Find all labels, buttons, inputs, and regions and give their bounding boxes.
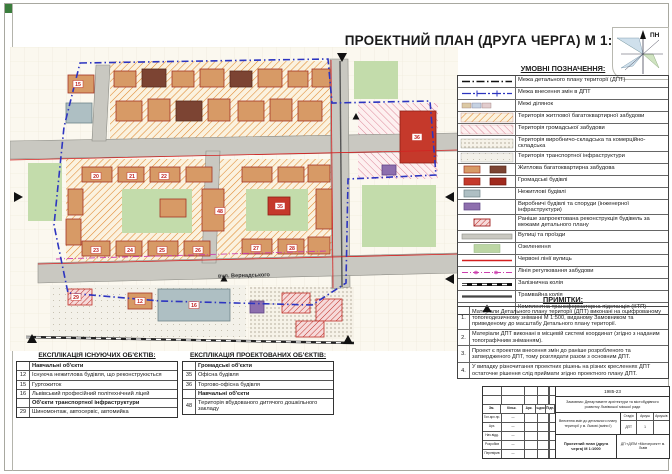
building[interactable] (160, 199, 186, 217)
building-number: 36 (412, 134, 422, 142)
building[interactable] (282, 293, 310, 313)
explication-existing: ЕКСПЛІКАЦІЯ ІСНУЮЧИХ ОБ'ЄКТІВ: Навчальні… (16, 352, 178, 418)
building[interactable] (172, 71, 194, 87)
legend-swatch (458, 76, 516, 87)
explication-row: Громадські об'єкти (183, 362, 333, 370)
object-label: Навчальні об'єкти (196, 390, 333, 398)
signature-row: Гол.арх.пр.— (483, 413, 555, 422)
legend-swatch (458, 100, 516, 111)
signature-cell: — (502, 414, 525, 422)
signature-row: Розробив— (483, 440, 555, 449)
signature-cell (550, 396, 555, 404)
building[interactable] (148, 99, 170, 121)
signature-cell (550, 441, 555, 449)
legend-label: Лінія регулювання забудови (516, 267, 668, 278)
object-number: 15 (17, 381, 30, 389)
signature-cell (538, 387, 549, 395)
building[interactable] (288, 71, 308, 87)
object-number (17, 399, 30, 407)
signature-cell: Перевірив (483, 450, 502, 458)
signature-cell (525, 432, 538, 440)
legend-label: Червоні лінії вулиць (516, 255, 668, 266)
signature-cell (538, 423, 549, 431)
legend-row: Межа внесення змін в ДПТ (458, 87, 668, 99)
building[interactable] (278, 167, 304, 182)
svg-text:12: 12 (137, 299, 143, 305)
project-code: 1985-23 (556, 387, 669, 397)
signature-cell (550, 450, 555, 458)
svg-text:15: 15 (75, 82, 81, 88)
bar-gray-swatch-icon (460, 231, 514, 242)
note-number: 2. (458, 330, 470, 346)
note-number: 3. (458, 346, 470, 362)
explication-row: Навчальні об'єкти (17, 362, 177, 370)
notes-title: ПРИМІТКИ: (457, 295, 669, 304)
building[interactable] (296, 321, 324, 337)
building[interactable] (382, 165, 396, 175)
building-number: 27 (251, 245, 261, 253)
building[interactable] (242, 167, 272, 182)
legend-swatch (458, 152, 516, 163)
signature-row: Арх.— (483, 422, 555, 431)
explication-row: 36Торгово-офісна будівля (183, 380, 333, 389)
signature-cell (538, 441, 549, 449)
explication-projected: ЕКСПЛІКАЦІЯ ПРОЕКТОВАНИХ ОБ'ЄКТІВ: Грома… (182, 352, 334, 415)
note-row: 2.Матеріали ДПТ виконані в місцевій сист… (458, 329, 668, 346)
sheet-name: Проектний план (друга черга) М 1:1000 (556, 435, 617, 458)
sheet-value: 1 (637, 421, 653, 434)
signature-cell (483, 396, 502, 404)
building[interactable] (270, 99, 292, 121)
svg-text:21: 21 (129, 174, 135, 180)
notes-table: 1.Матеріали Детального плану території (… (457, 306, 669, 379)
object-number: 12 (17, 371, 30, 379)
building-number: 24 (125, 247, 135, 255)
signature-cell (550, 414, 555, 422)
legend-swatch (458, 215, 516, 230)
signature-row (483, 387, 555, 395)
legend-swatch (458, 176, 516, 187)
explication-row: 15Гуртожиток (17, 380, 177, 389)
signature-cell: Розробив (483, 441, 502, 449)
object-label: Громадські об'єкти (196, 362, 333, 370)
legend-row: Територія громадської забудови (458, 123, 668, 135)
project-name: Внесення змін до детального плану терито… (556, 413, 621, 434)
building[interactable] (68, 189, 83, 215)
object-label: Об'єкти транспортної інфраструктури (30, 399, 177, 407)
explication-projected-table: Громадські об'єкти35Офісна будівля36Торг… (182, 361, 334, 415)
building-number: 22 (159, 173, 169, 181)
signature-cell (550, 387, 555, 395)
page-title: ПРОЕКТНИЙ ПЛАН (ДРУГА ЧЕРГА) М 1:1000 (344, 33, 644, 48)
explication-projected-title: ЕКСПЛІКАЦІЯ ПРОЕКТОВАНИХ ОБ'ЄКТІВ: (182, 352, 334, 359)
explication-row: Об'єкти транспортної інфраструктури (17, 398, 177, 407)
signature-cell (525, 441, 538, 449)
rects-tan-swatch-icon (460, 164, 514, 175)
legend-swatch (458, 88, 516, 99)
signature-cell (483, 387, 502, 395)
building[interactable] (316, 299, 342, 321)
signature-cell: — (502, 432, 525, 440)
building-number: 21 (127, 173, 137, 181)
svg-text:29: 29 (73, 295, 79, 301)
legend-swatch (458, 243, 516, 254)
object-label: Шиномонтаж, автосервіс, автомийка (30, 408, 177, 416)
object-number (17, 362, 30, 370)
corner-marker (5, 4, 12, 13)
legend-swatch (458, 200, 516, 215)
svg-text:20: 20 (93, 174, 99, 180)
object-number: 35 (183, 371, 196, 379)
signature-cell (525, 450, 538, 458)
svg-text:16: 16 (191, 303, 197, 309)
building[interactable] (316, 189, 332, 229)
signature-cell (550, 423, 555, 431)
building-number: 20 (91, 173, 101, 181)
signature-cell: №док. (536, 405, 547, 413)
signature-cell (525, 396, 538, 404)
note-row: 1.Матеріали Детального плану території (… (458, 307, 668, 329)
legend-row: Межа детального плану території (ДПТ) (458, 76, 668, 87)
legend-row: Громадські будівлі (458, 175, 668, 187)
line-blue-swatch-icon (460, 88, 514, 99)
object-label: Торгово-офісна будівля (196, 381, 333, 389)
signature-cell: Нач.відд. (483, 432, 502, 440)
building[interactable] (258, 69, 282, 87)
signature-row (483, 395, 555, 404)
svg-text:22: 22 (161, 174, 167, 180)
explication-row: 35Офісна будівля (183, 370, 333, 379)
building[interactable] (116, 101, 142, 121)
organization-name: ДП «ДІПМ «Містопроект» м. Львів (617, 435, 669, 458)
signature-row: Нач.відд.— (483, 431, 555, 440)
building[interactable] (208, 99, 230, 121)
legend-label: Житлова багатоквартирна забудова (516, 164, 668, 175)
object-number: 36 (183, 381, 196, 389)
building[interactable] (298, 101, 322, 121)
legend-swatch (458, 255, 516, 266)
signature-cell: — (502, 441, 525, 449)
svg-text:ПН: ПН (650, 32, 660, 39)
signature-cell (525, 423, 538, 431)
signature-cell: Зм. (483, 405, 501, 413)
object-label: Існуюча нежитлова будівля, що реконструю… (30, 371, 177, 379)
stage-grid: Стадія Аркуш Аркушів ДПТ 1 (621, 413, 669, 434)
legend-row: Територія транспортної інфраструктури (458, 151, 668, 163)
legend-label: Виробничі будівлі та споруди (інженерної… (516, 200, 668, 215)
title-block: Зм.Кільк.Арк.№док.Підп.ДатаГол.арх.пр.—А… (482, 386, 670, 459)
building-number: 25 (157, 247, 167, 255)
client-name: Замовник: Департамент архітектури та міс… (556, 397, 669, 413)
note-text: Матеріали ДПТ виконані в місцевій систем… (470, 330, 668, 346)
legend-swatch (458, 188, 516, 199)
stage-header: Стадія (621, 413, 637, 420)
building[interactable] (66, 219, 81, 245)
explication-existing-table: Навчальні об'єкти12Існуюча нежитлова буд… (16, 361, 178, 418)
building[interactable] (114, 71, 136, 87)
svg-text:26: 26 (195, 248, 201, 254)
rect-darkred-swatch-icon (460, 217, 514, 228)
building-number: 12 (135, 298, 145, 306)
signature-cell (538, 414, 549, 422)
sheets-value (654, 421, 669, 434)
stage-value: ДПТ (621, 421, 637, 434)
legend-row: Територія житлової багатоквартирної забу… (458, 111, 668, 123)
legend-row: Межі ділянок (458, 99, 668, 111)
legend-panel: УМОВНІ ПОЗНАЧЕННЯ: Межа детального плану… (457, 64, 669, 315)
svg-text:28: 28 (289, 246, 295, 252)
signature-cell: Кільк. (501, 405, 523, 413)
rects-red-swatch-icon (460, 176, 514, 187)
signature-cell (538, 450, 549, 458)
legend-swatch (458, 267, 516, 278)
svg-text:27: 27 (253, 246, 259, 252)
signature-cell: Підп. (546, 405, 555, 413)
note-text: Проект є проектом внесення змін до раніш… (470, 346, 668, 362)
legend-label: Межа внесення змін в ДПТ (516, 88, 668, 99)
note-row: 4.У випадку різночитання проектних рішен… (458, 362, 668, 379)
legend-label: Раніше запроектована реконструкція будів… (516, 215, 668, 230)
legend-row: Червоні лінії вулиць (458, 254, 668, 266)
legend-title: УМОВНІ ПОЗНАЧЕННЯ: (457, 64, 669, 73)
legend-label: Територія житлової багатоквартирної забу… (516, 112, 668, 123)
explication-row: 16Львівський професійний політехнічний л… (17, 389, 177, 398)
svg-text:36: 36 (414, 135, 420, 141)
legend-label: Залізнична колія (516, 279, 668, 290)
legend-label: Територія транспортної інфраструктури (516, 152, 668, 163)
legend-row: Виробничі будівлі та споруди (інженерної… (458, 199, 668, 215)
drawing-sheet: ПРОЕКТНИЙ ПЛАН (ДРУГА ЧЕРГА) М 1:1000 ПН… (0, 0, 672, 474)
building-number: 48 (215, 208, 225, 216)
note-number: 4. (458, 363, 470, 379)
object-number: 29 (17, 408, 30, 416)
signature-cell (525, 414, 538, 422)
object-label: Гуртожиток (30, 381, 177, 389)
legend-swatch (458, 164, 516, 175)
building-number: 23 (91, 247, 101, 255)
signature-cell (502, 387, 525, 395)
note-number: 1. (458, 307, 470, 329)
hatch-pink-swatch-icon (460, 124, 514, 135)
sheet-header: Аркуш (637, 413, 653, 420)
note-text: У випадку різночитання проектних рішень … (470, 363, 668, 379)
svg-text:23: 23 (93, 248, 99, 254)
signature-cell: Арк. (523, 405, 535, 413)
building[interactable] (308, 165, 330, 182)
master-plan-map[interactable]: 20212223242526272835364816121529вул. Вер… (10, 47, 458, 351)
building-number: 35 (275, 203, 285, 211)
svg-text:25: 25 (159, 248, 165, 254)
explication-row: 48Територія вбудованого дитячого дошкіль… (183, 398, 333, 414)
legend-label: Територія громадської забудови (516, 124, 668, 135)
dots-light-swatch-icon (460, 152, 514, 163)
signature-cell: Арх. (483, 423, 502, 431)
note-row: 3.Проект є проектом внесення змін до ран… (458, 345, 668, 362)
legend-label: Територія виробничо-складська та комерці… (516, 136, 668, 151)
legend-label: Громадські будівлі (516, 176, 668, 187)
fill-green-swatch-icon (460, 243, 514, 254)
line-magenta-swatch-icon (460, 267, 514, 278)
legend-swatch (458, 124, 516, 135)
object-number (183, 362, 196, 370)
rect-gray-swatch-icon (460, 188, 514, 199)
rect-purple-swatch-icon (460, 201, 514, 212)
signature-cell: Гол.арх.пр. (483, 414, 502, 422)
legend-swatch (458, 112, 516, 123)
building-number: 29 (71, 294, 81, 302)
object-label: Львівський професійний політехнічний ліц… (30, 390, 177, 398)
notes-panel: ПРИМІТКИ: 1.Матеріали Детального плану т… (457, 295, 669, 379)
zone-green (362, 185, 436, 247)
signature-cell: — (502, 450, 525, 458)
line-red-swatch-icon (460, 255, 514, 266)
sheets-header: Аркушів (654, 413, 669, 420)
legend-label: Озеленення (516, 243, 668, 254)
object-label: Навчальні об'єкти (30, 362, 177, 370)
legend-row: Вулиці та проїзди (458, 230, 668, 242)
hatch-orange-swatch-icon (460, 112, 514, 123)
rail-swatch-icon (460, 279, 514, 290)
signature-cell (550, 432, 555, 440)
signature-cell (538, 396, 549, 404)
legend-row: Територія виробничо-складська та комерці… (458, 135, 668, 151)
building[interactable] (142, 69, 166, 87)
building-number: 26 (193, 247, 203, 255)
building-number: 16 (189, 302, 199, 310)
legend-swatch (458, 231, 516, 242)
parcels-swatch-icon (460, 100, 514, 111)
dots-dense-swatch-icon (460, 138, 514, 149)
building-number: 28 (287, 245, 297, 253)
legend-label: Межа детального плану території (ДПТ) (516, 76, 668, 87)
explication-row: Навчальні об'єкти (183, 389, 333, 398)
object-number: 48 (183, 399, 196, 414)
signature-row: Зм.Кільк.Арк.№док.Підп.Дата (483, 404, 555, 413)
svg-text:35: 35 (277, 204, 283, 210)
object-label: Територія вбудованого дитячого дошкільно… (196, 399, 333, 414)
legend-label: Межі ділянок (516, 100, 668, 111)
building[interactable] (230, 71, 252, 87)
explication-row: 29Шиномонтаж, автосервіс, автомийка (17, 407, 177, 416)
building[interactable] (312, 69, 330, 87)
legend-row: Озеленення (458, 242, 668, 254)
signature-cell (502, 396, 525, 404)
legend-label: Вулиці та проїзди (516, 231, 668, 242)
legend-row: Раніше запроектована реконструкція будів… (458, 214, 668, 230)
svg-text:24: 24 (127, 248, 133, 254)
legend-label: Нежитлові будівлі (516, 188, 668, 199)
svg-text:48: 48 (217, 209, 223, 215)
building[interactable] (238, 101, 264, 121)
legend-row: Житлова багатоквартирна забудова (458, 163, 668, 175)
building[interactable] (186, 167, 212, 182)
legend-swatch (458, 136, 516, 151)
legend-row: Нежитлові будівлі (458, 187, 668, 199)
signature-row: Перевірив— (483, 449, 555, 458)
legend-swatch (458, 279, 516, 290)
zone-green (354, 61, 398, 99)
explication-row: 12Існуюча нежитлова будівля, що реконстр… (17, 370, 177, 379)
explication-existing-title: ЕКСПЛІКАЦІЯ ІСНУЮЧИХ ОБ'ЄКТІВ: (16, 352, 178, 359)
object-number (183, 390, 196, 398)
legend-row: Лінія регулювання забудови (458, 266, 668, 278)
building-number: 15 (73, 81, 83, 89)
signature-cell (525, 387, 538, 395)
title-block-signatures: Зм.Кільк.Арк.№док.Підп.ДатаГол.арх.пр.—А… (483, 387, 556, 458)
signature-cell (538, 432, 549, 440)
building[interactable] (176, 101, 202, 121)
line-black-swatch-icon (460, 76, 514, 87)
object-label: Офісна будівля (196, 371, 333, 379)
note-text: Матеріали Детального плану території (ДП… (470, 307, 668, 329)
signature-cell: — (502, 423, 525, 431)
object-number: 16 (17, 390, 30, 398)
building[interactable] (200, 69, 224, 87)
legend-table: Межа детального плану території (ДПТ)Меж… (457, 75, 669, 315)
legend-row: Залізнична колія (458, 278, 668, 290)
